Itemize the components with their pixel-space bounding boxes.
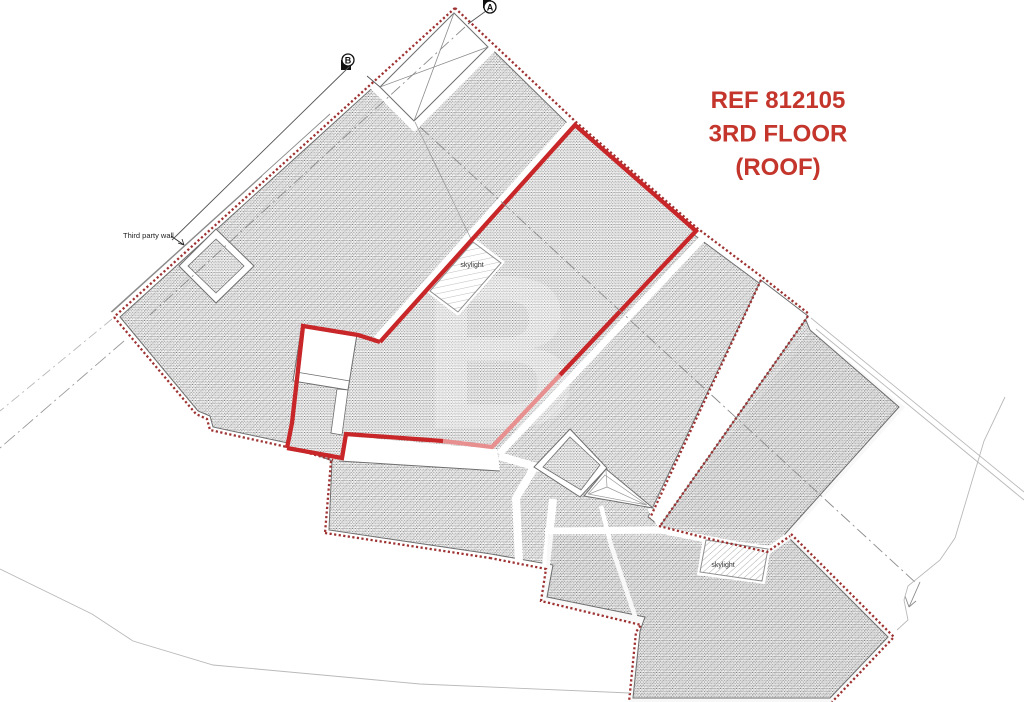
svg-text:skylight: skylight: [460, 262, 483, 269]
svg-text:Third party wall: Third party wall: [123, 231, 174, 240]
svg-text:A: A: [487, 2, 494, 12]
svg-text:(ROOF): (ROOF): [735, 154, 820, 181]
svg-text:REF 812105: REF 812105: [711, 87, 846, 114]
svg-text:B: B: [345, 55, 352, 65]
svg-text:skylight: skylight: [711, 562, 734, 569]
svg-text:3RD FLOOR: 3RD FLOOR: [709, 121, 848, 148]
